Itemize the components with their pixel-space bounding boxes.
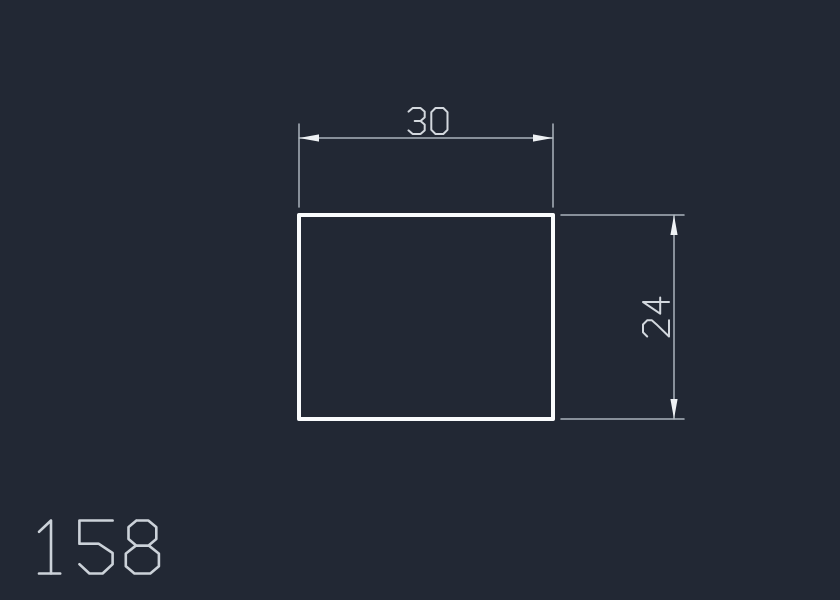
width-arrow-left-icon xyxy=(299,134,319,141)
drawing-canvas[interactable] xyxy=(0,0,840,600)
width-extension-lines xyxy=(299,124,553,207)
height-extension-lines xyxy=(561,215,684,419)
cad-viewport[interactable] xyxy=(0,0,840,600)
part-number-label[interactable] xyxy=(39,521,159,574)
height-arrow-bottom-icon xyxy=(670,399,677,419)
height-arrow-top-icon xyxy=(670,215,677,235)
width-dimension[interactable] xyxy=(299,108,553,207)
width-arrow-right-icon xyxy=(533,134,553,141)
width-dimension-text xyxy=(409,108,448,134)
profile-rectangle[interactable] xyxy=(299,215,553,419)
height-dimension-text xyxy=(643,298,669,337)
height-dimension[interactable] xyxy=(561,215,684,419)
